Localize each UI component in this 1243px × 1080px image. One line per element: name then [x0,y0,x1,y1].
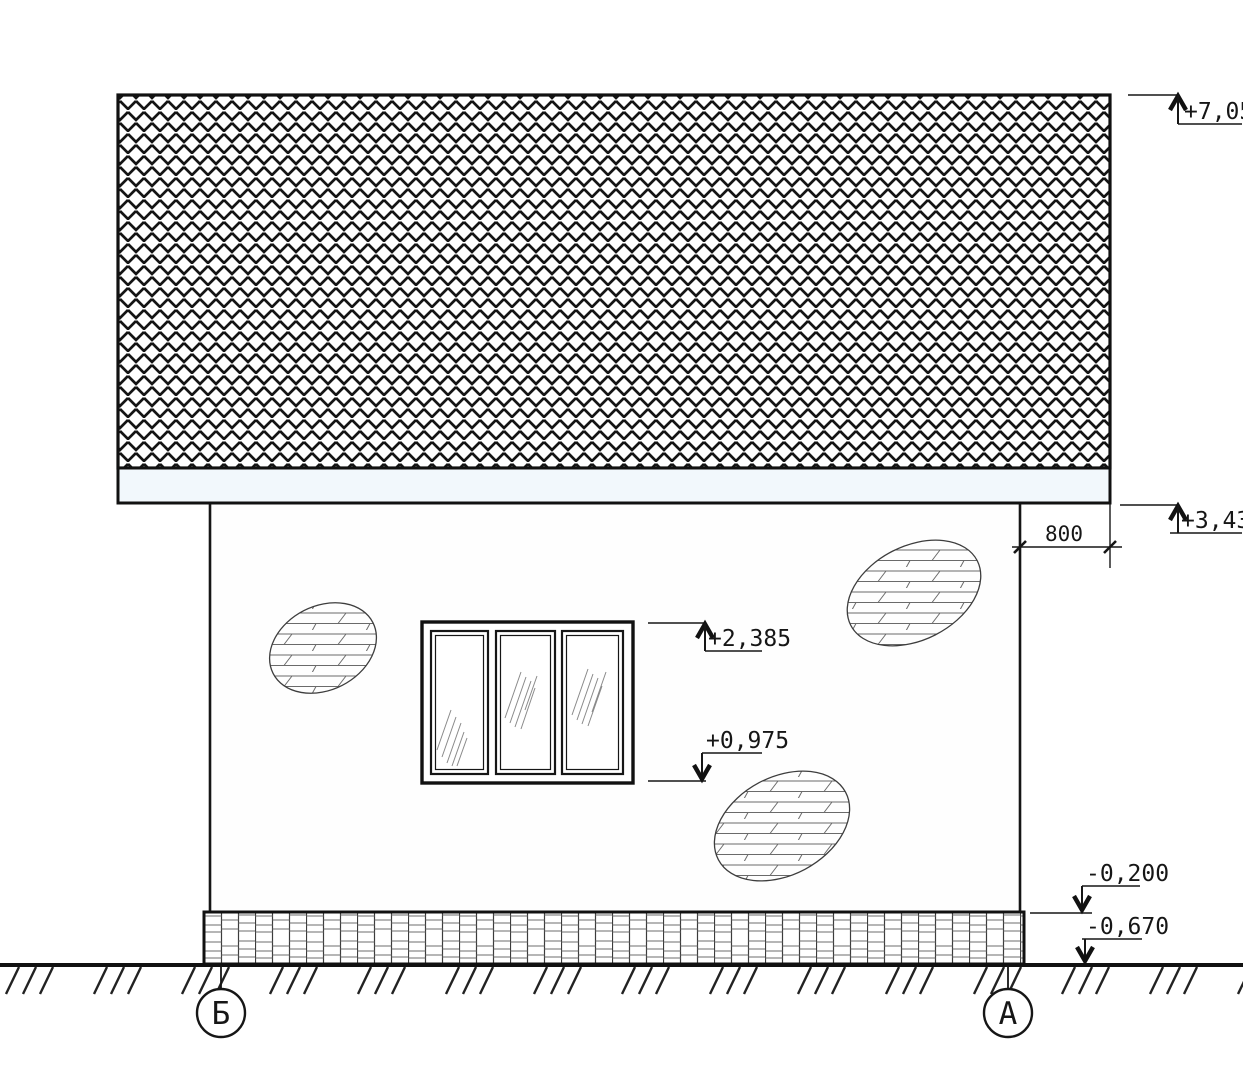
elevation-value-window-sill: +0,975 [706,728,789,754]
plinth [204,912,1024,964]
elevation-value-window-head: +2,385 [708,626,791,652]
axis-label-left: Б [212,996,231,1032]
roof-hatch-area [118,95,1110,468]
dimension-value: 800 [1045,522,1083,546]
roof [118,95,1110,503]
elevation-value-eaves: +3,430 [1181,508,1243,534]
drawing-canvas: +7,058 +3,430 +2,385 +0,975 -0,200 -0,67… [0,0,1243,1080]
elevation-value-ground: -0,670 [1086,914,1169,940]
facade-elevation-drawing: +7,058 +3,430 +2,385 +0,975 -0,200 -0,67… [0,0,1243,1080]
roof-fascia-band [118,468,1110,503]
elevation-value-ridge: +7,058 [1184,99,1243,125]
elevation-value-plinth-top: -0,200 [1086,861,1169,887]
window [422,622,633,783]
axis-label-right: А [999,996,1018,1032]
